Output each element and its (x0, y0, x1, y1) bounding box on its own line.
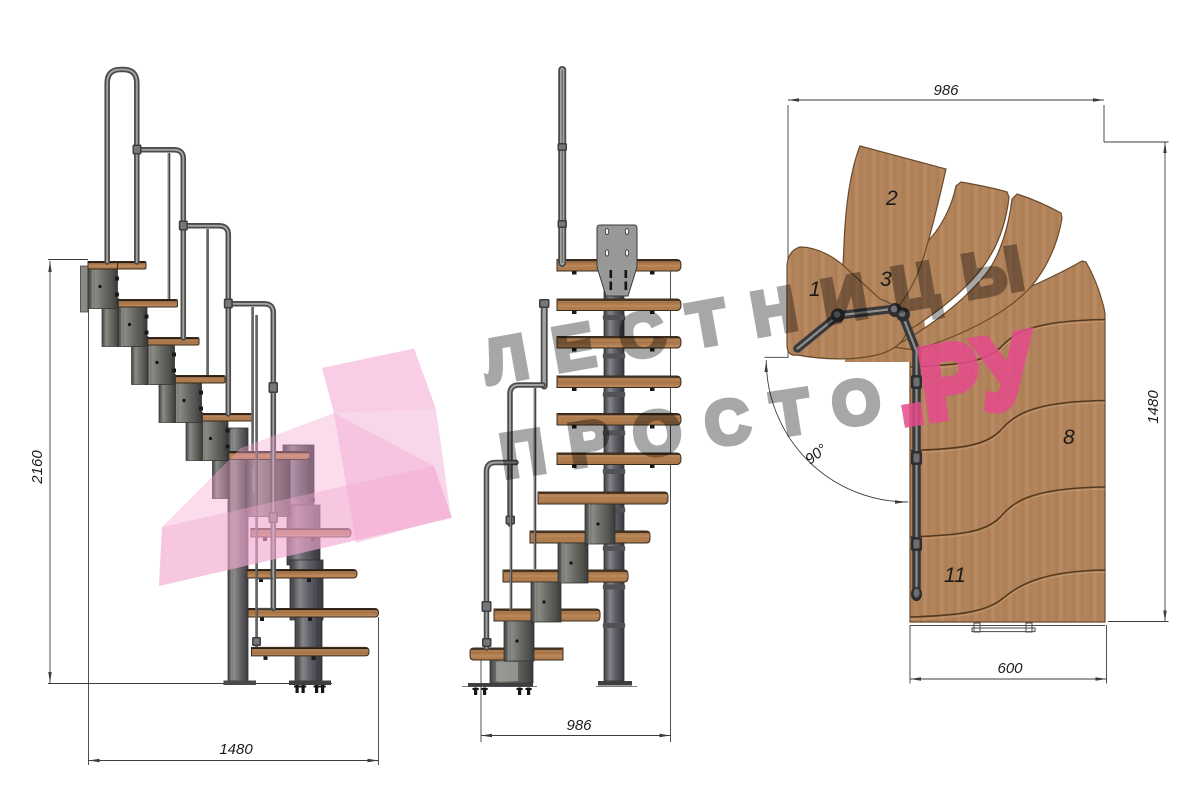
svg-text:2160: 2160 (29, 450, 46, 485)
svg-text:600: 600 (997, 660, 1023, 677)
svg-text:2: 2 (885, 187, 898, 210)
svg-text:986: 986 (566, 717, 592, 734)
svg-text:11: 11 (944, 564, 966, 587)
svg-text:8: 8 (1063, 426, 1075, 449)
svg-text:1480: 1480 (219, 741, 253, 758)
svg-text:986: 986 (933, 82, 959, 99)
svg-text:1480: 1480 (1145, 390, 1162, 424)
svg-text:.РУ: .РУ (887, 311, 1044, 446)
